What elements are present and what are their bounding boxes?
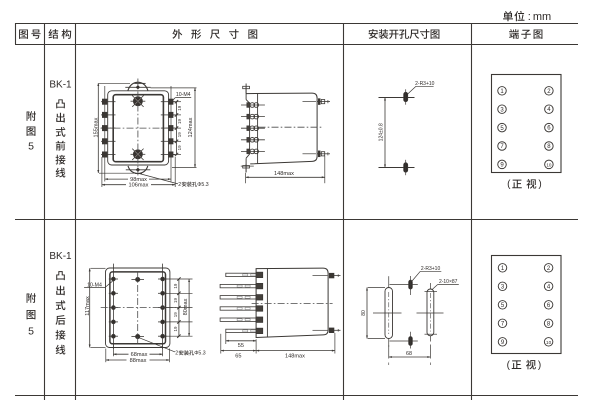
- svg-text:6: 6: [547, 303, 551, 309]
- svg-text:19: 19: [177, 105, 182, 111]
- svg-text:5: 5: [500, 126, 504, 132]
- svg-text:1: 1: [501, 266, 505, 272]
- svg-text:10-M4: 10-M4: [176, 92, 191, 98]
- svg-text:68: 68: [406, 351, 412, 357]
- svg-text:7: 7: [501, 322, 505, 328]
- svg-text:148max: 148max: [285, 354, 305, 360]
- svg-text:5: 5: [28, 326, 34, 338]
- svg-text:19: 19: [173, 283, 178, 289]
- svg-text:Φ5.3: Φ5.3: [194, 351, 205, 357]
- svg-text:7: 7: [500, 144, 504, 150]
- svg-text:(: (: [507, 179, 511, 190]
- svg-text:5: 5: [28, 141, 34, 153]
- svg-text:Φ5.3: Φ5.3: [197, 182, 208, 188]
- svg-text:19: 19: [173, 326, 178, 332]
- svg-text:8: 8: [547, 321, 551, 327]
- svg-text:19: 19: [173, 297, 178, 303]
- svg-text:3: 3: [501, 285, 505, 291]
- svg-text:124±0.8: 124±0.8: [379, 123, 385, 141]
- svg-text:9: 9: [500, 163, 504, 169]
- svg-text:106max: 106max: [129, 183, 149, 189]
- svg-text:19: 19: [177, 145, 182, 151]
- svg-text:3: 3: [500, 107, 504, 113]
- svg-text:mm: mm: [533, 11, 551, 23]
- svg-text:1: 1: [500, 89, 504, 95]
- svg-text:2: 2: [547, 89, 551, 95]
- svg-text:2: 2: [178, 182, 181, 188]
- svg-text:19: 19: [177, 119, 182, 125]
- svg-text:65: 65: [235, 354, 241, 360]
- svg-text:4: 4: [547, 284, 551, 290]
- svg-text:): ): [538, 179, 541, 190]
- svg-text:BK-1: BK-1: [49, 80, 72, 91]
- svg-text:5: 5: [501, 303, 505, 309]
- svg-text:2: 2: [547, 266, 551, 272]
- svg-text:4: 4: [547, 107, 551, 113]
- svg-text:55: 55: [238, 343, 244, 349]
- svg-text:80max: 80max: [183, 298, 189, 315]
- svg-text:88max: 88max: [130, 358, 147, 364]
- svg-text:19: 19: [177, 132, 182, 138]
- svg-text::: :: [528, 11, 531, 23]
- svg-text:10: 10: [546, 162, 552, 167]
- svg-text:148max: 148max: [274, 171, 294, 177]
- svg-text:(: (: [507, 360, 511, 371]
- svg-text:155max: 155max: [93, 117, 99, 137]
- svg-text:117max: 117max: [85, 296, 91, 316]
- svg-text:BK-1: BK-1: [49, 251, 72, 262]
- svg-text:8: 8: [547, 144, 551, 150]
- svg-text:6: 6: [547, 126, 551, 132]
- svg-text:2: 2: [175, 351, 178, 357]
- svg-text:19: 19: [173, 312, 178, 318]
- svg-text:): ): [538, 360, 541, 371]
- svg-text:10: 10: [546, 340, 552, 345]
- svg-text:9: 9: [501, 340, 505, 346]
- svg-text:124max: 124max: [188, 117, 194, 137]
- svg-text:80: 80: [361, 310, 367, 316]
